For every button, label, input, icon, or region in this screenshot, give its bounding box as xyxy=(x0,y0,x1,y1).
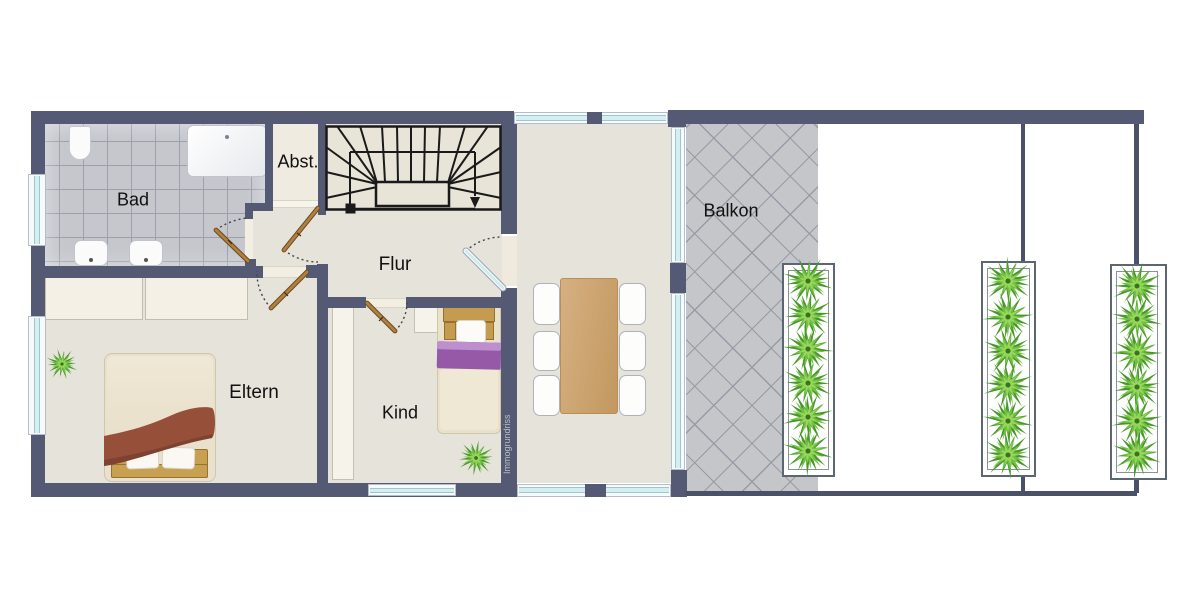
svg-text:Immogrundriss: Immogrundriss xyxy=(502,414,512,474)
